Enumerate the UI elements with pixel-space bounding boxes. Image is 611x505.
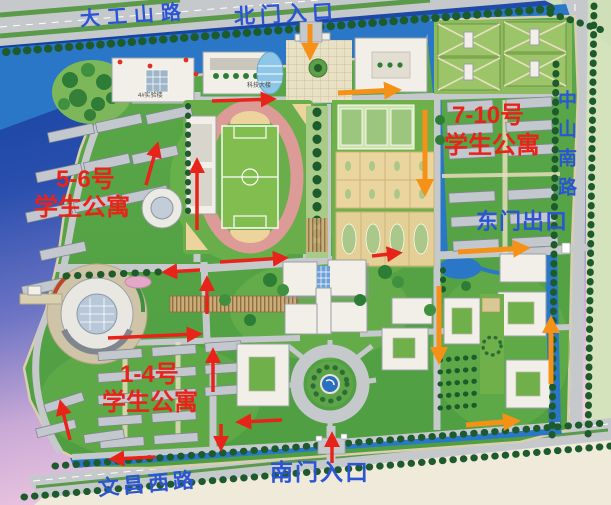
admin-slab-building <box>355 38 427 92</box>
campus-map <box>0 0 611 505</box>
gate-label-east: 东门出口 <box>476 211 568 233</box>
dorm-label-south-line2: 学生公寓 <box>102 391 198 415</box>
tree-boulevard <box>306 106 328 258</box>
gate-label-north: 北门入口 <box>234 1 339 27</box>
dorm-label-east-line1: 7-10号 <box>452 104 524 128</box>
pergola-trellis <box>170 296 298 312</box>
gate-label-south: 南门入口 <box>270 461 370 484</box>
road-label-zhongshan: 中山南路 <box>556 90 575 206</box>
sports-courts <box>332 100 434 268</box>
dorm-label-south-line1: 1-4号 <box>120 363 179 387</box>
green-roof-quad <box>434 20 572 94</box>
stadium <box>183 100 313 254</box>
dorm-label-west-line2: 学生公寓 <box>34 196 130 220</box>
campus-map-screenshot: 大工山路 北门入口 中山南路 东门出口 南门入口 文昌西路 7-10号 学生公寓… <box>0 0 611 505</box>
dorm-label-west-line1: 5-6号 <box>56 168 115 192</box>
dorm-label-east-line2: 学生公寓 <box>444 134 540 158</box>
building-label-lab: 4#实验楼 <box>138 93 163 99</box>
building-label-science: 科技大楼 <box>247 83 271 89</box>
fountain <box>321 375 339 393</box>
east-gate <box>562 243 570 253</box>
